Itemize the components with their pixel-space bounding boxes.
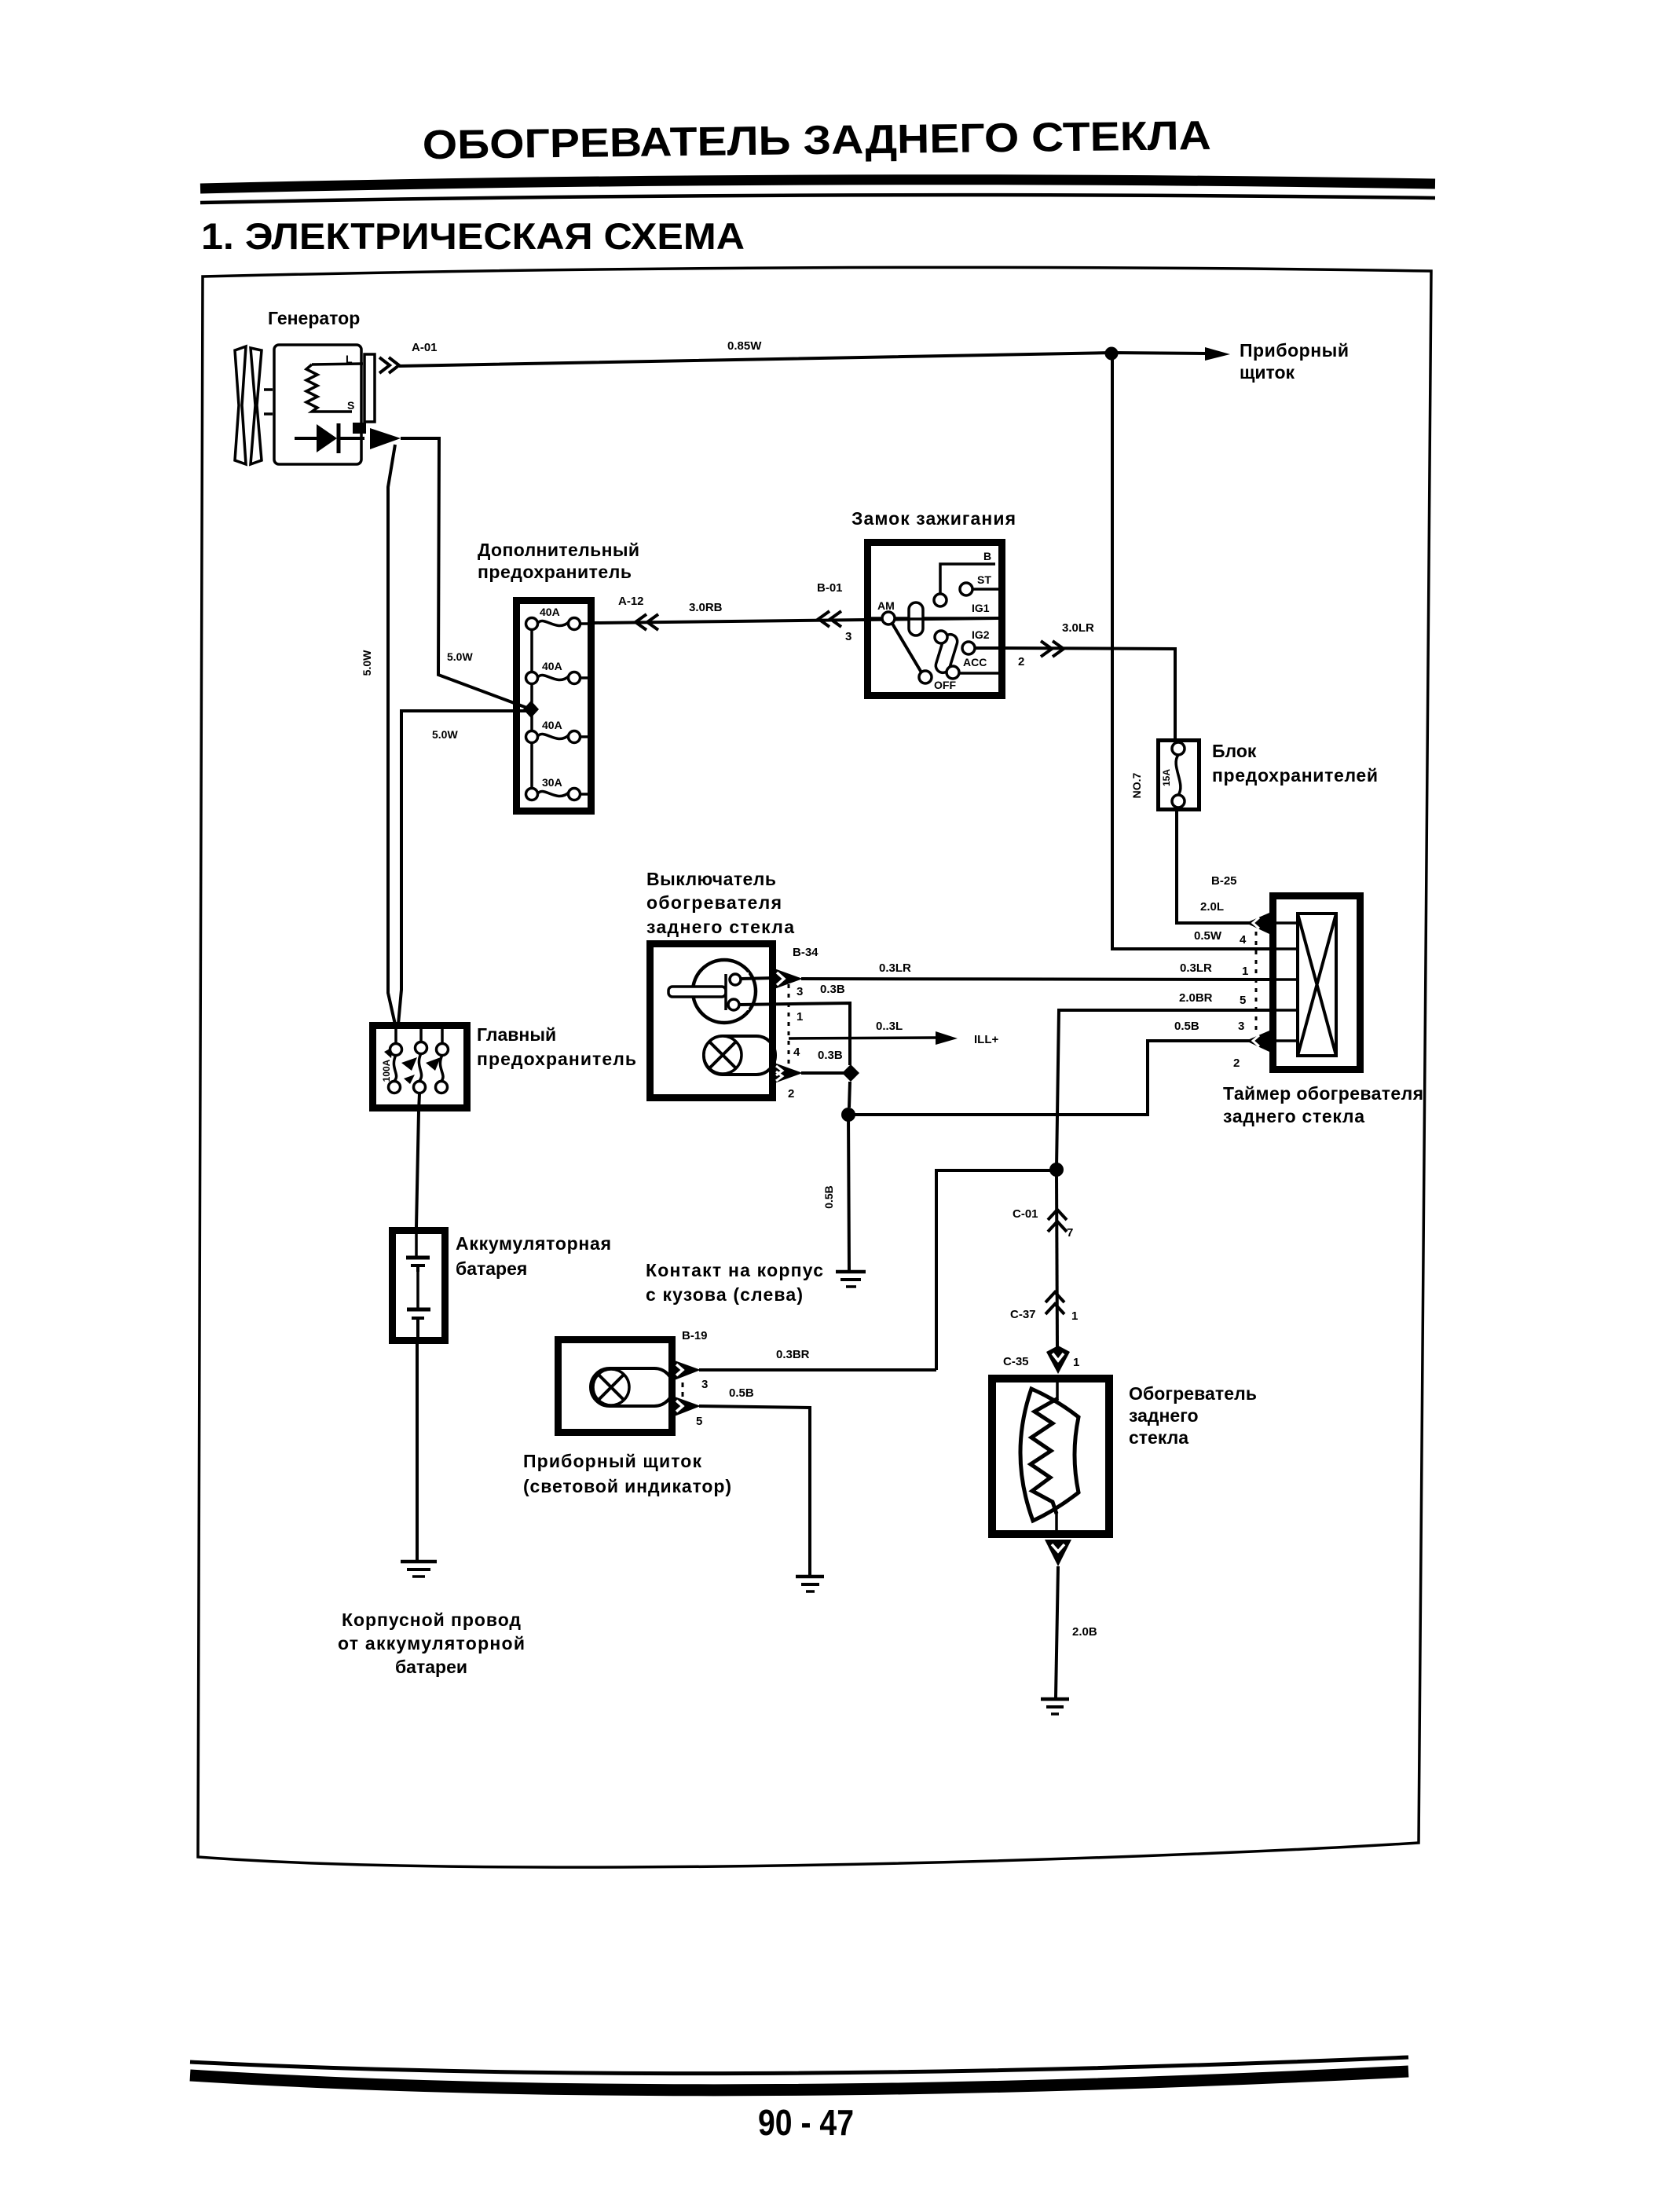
svg-text:стекла: стекла — [1129, 1427, 1188, 1448]
svg-text:2.0L: 2.0L — [1200, 900, 1224, 914]
svg-text:A-01: A-01 — [412, 341, 438, 354]
svg-text:3: 3 — [701, 1378, 708, 1391]
svg-text:ACC: ACC — [963, 656, 987, 668]
svg-text:ОБОГРЕВАТЕЛЬ ЗАДНЕГО СТЕКЛА: ОБОГРЕВАТЕЛЬ ЗАДНЕГО СТЕКЛА — [422, 113, 1211, 168]
svg-text:0.5B: 0.5B — [1174, 1020, 1199, 1033]
svg-text:Аккумуляторная: Аккумуляторная — [456, 1233, 611, 1254]
svg-text:4: 4 — [1240, 933, 1247, 947]
svg-text:Замок зажигания: Замок зажигания — [851, 508, 1016, 529]
svg-text:B: B — [983, 550, 991, 562]
svg-text:Блок: Блок — [1212, 741, 1257, 761]
svg-text:заднего: заднего — [1129, 1405, 1199, 1426]
svg-text:3: 3 — [1238, 1020, 1244, 1033]
svg-text:5.0W: 5.0W — [432, 728, 458, 741]
svg-text:0.3LR: 0.3LR — [879, 961, 911, 975]
svg-text:Приборный: Приборный — [1240, 340, 1349, 361]
svg-text:с кузова (слева): с кузова (слева) — [646, 1284, 803, 1305]
svg-text:A-12: A-12 — [618, 595, 644, 608]
svg-text:(световой индикатор): (световой индикатор) — [523, 1476, 731, 1496]
svg-text:3.0RB: 3.0RB — [689, 601, 723, 614]
svg-text:Главный: Главный — [477, 1024, 556, 1045]
svg-text:Корпусной провод: Корпусной провод — [342, 1610, 521, 1630]
svg-text:IG2: IG2 — [972, 628, 990, 641]
svg-text:NO.7: NO.7 — [1130, 772, 1143, 798]
svg-text:предохранителей: предохранителей — [1212, 765, 1378, 786]
svg-text:заднего стекла: заднего стекла — [646, 917, 794, 937]
svg-text:B-34: B-34 — [793, 946, 819, 959]
svg-text:5.0W: 5.0W — [447, 650, 473, 663]
svg-text:3: 3 — [845, 630, 851, 643]
svg-text:0.5W: 0.5W — [1194, 929, 1222, 943]
svg-text:1: 1 — [1071, 1309, 1078, 1323]
svg-text:L: L — [346, 353, 353, 365]
svg-text:C-35: C-35 — [1003, 1355, 1029, 1368]
svg-text:C-01: C-01 — [1013, 1207, 1038, 1221]
svg-text:40A: 40A — [540, 606, 560, 618]
svg-text:C-37: C-37 — [1010, 1308, 1036, 1321]
svg-text:3: 3 — [797, 985, 803, 998]
svg-text:0.3B: 0.3B — [818, 1049, 843, 1062]
svg-text:0.5B: 0.5B — [822, 1185, 835, 1209]
svg-text:заднего стекла: заднего стекла — [1223, 1106, 1364, 1126]
svg-text:IG1: IG1 — [972, 602, 990, 614]
svg-text:Контакт на корпус: Контакт на корпус — [646, 1260, 823, 1280]
svg-text:ST: ST — [977, 573, 991, 586]
svg-text:B-25: B-25 — [1211, 874, 1237, 888]
svg-text:Выключатель: Выключатель — [646, 869, 776, 889]
svg-text:обогревателя: обогревателя — [646, 892, 782, 913]
svg-text:батарея: батарея — [456, 1258, 527, 1279]
svg-text:90 - 47: 90 - 47 — [758, 2102, 854, 2143]
svg-text:0.85W: 0.85W — [727, 339, 762, 353]
svg-text:7: 7 — [1067, 1226, 1073, 1240]
svg-text:2.0BR: 2.0BR — [1179, 991, 1213, 1005]
svg-text:2.0B: 2.0B — [1072, 1625, 1097, 1639]
svg-text:от аккумуляторной: от аккумуляторной — [338, 1633, 525, 1654]
svg-text:B-01: B-01 — [817, 581, 843, 595]
svg-text:5: 5 — [1240, 994, 1246, 1007]
svg-text:1: 1 — [797, 1010, 803, 1024]
svg-text:0.3B: 0.3B — [820, 983, 845, 996]
svg-text:Приборный щиток: Приборный щиток — [523, 1451, 701, 1471]
svg-text:щиток: щиток — [1240, 362, 1295, 383]
svg-text:1: 1 — [1242, 965, 1248, 978]
svg-text:B-19: B-19 — [682, 1329, 708, 1342]
svg-text:Обогреватель: Обогреватель — [1129, 1383, 1257, 1404]
svg-text:2: 2 — [1018, 655, 1024, 668]
svg-text:3.0LR: 3.0LR — [1062, 621, 1094, 635]
svg-text:0.3LR: 0.3LR — [1180, 961, 1212, 975]
svg-text:AM: AM — [877, 599, 895, 612]
svg-text:2: 2 — [1233, 1057, 1240, 1070]
svg-text:OFF: OFF — [934, 679, 956, 691]
svg-text:Таймер обогревателя: Таймер обогревателя — [1223, 1083, 1423, 1104]
svg-text:0.3BR: 0.3BR — [776, 1348, 810, 1361]
svg-text:батареи: батареи — [395, 1657, 467, 1677]
svg-text:2: 2 — [788, 1087, 794, 1101]
svg-text:0..3L: 0..3L — [876, 1020, 903, 1033]
svg-text:40A: 40A — [542, 719, 562, 731]
svg-text:Генератор: Генератор — [268, 308, 360, 328]
svg-text:1. ЭЛЕКТРИЧЕСКАЯ СХЕМА: 1. ЭЛЕКТРИЧЕСКАЯ СХЕМА — [201, 215, 745, 257]
svg-text:5.0W: 5.0W — [361, 650, 373, 676]
svg-text:5: 5 — [696, 1415, 702, 1428]
svg-text:0.5B: 0.5B — [729, 1386, 754, 1400]
svg-text:S: S — [347, 399, 354, 412]
svg-text:100A: 100A — [381, 1059, 392, 1082]
svg-text:15A: 15A — [1161, 769, 1172, 786]
svg-text:предохранитель: предохранитель — [477, 1049, 636, 1069]
svg-text:40A: 40A — [542, 660, 562, 672]
svg-text:30A: 30A — [542, 776, 562, 789]
svg-text:1: 1 — [1073, 1356, 1079, 1369]
svg-text:ILL+: ILL+ — [974, 1033, 998, 1046]
svg-text:предохранитель: предохранитель — [478, 562, 632, 582]
svg-text:Дополнительный: Дополнительный — [478, 540, 639, 560]
svg-text:4: 4 — [793, 1046, 800, 1059]
